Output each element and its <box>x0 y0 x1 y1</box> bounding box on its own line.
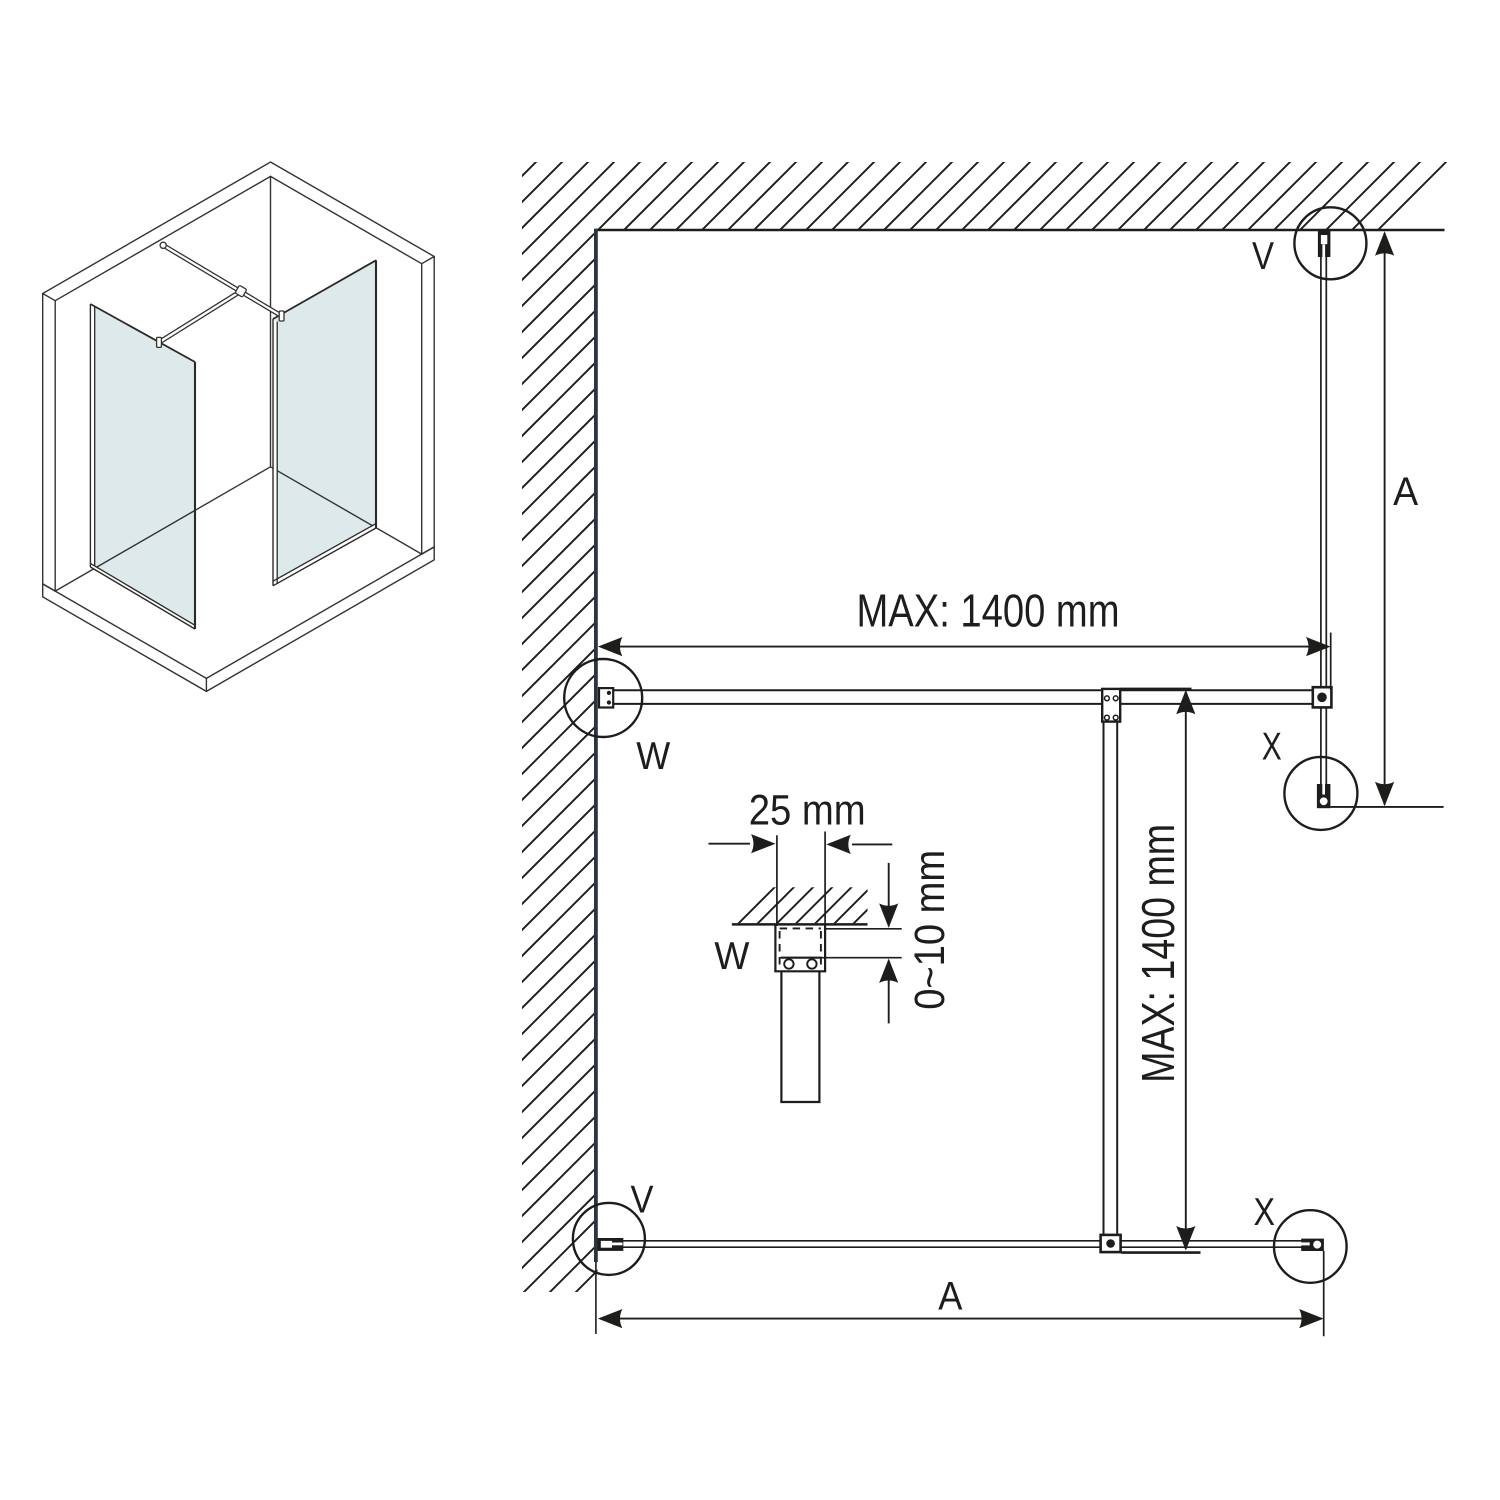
svg-text:X: X <box>1262 725 1282 768</box>
svg-text:W: W <box>636 735 671 778</box>
svg-text:V: V <box>631 1179 654 1222</box>
svg-text:MAX: 1400 mm: MAX: 1400 mm <box>857 585 1120 637</box>
svg-text:A: A <box>1393 470 1418 514</box>
svg-text:0~10 mm: 0~10 mm <box>906 850 954 1010</box>
svg-text:V: V <box>1252 235 1274 278</box>
svg-text:25 mm: 25 mm <box>749 787 866 835</box>
svg-text:W: W <box>714 935 750 978</box>
svg-text:A: A <box>938 1274 962 1318</box>
svg-text:MAX: 1400 mm: MAX: 1400 mm <box>1132 824 1184 1083</box>
svg-text:X: X <box>1254 1191 1276 1234</box>
